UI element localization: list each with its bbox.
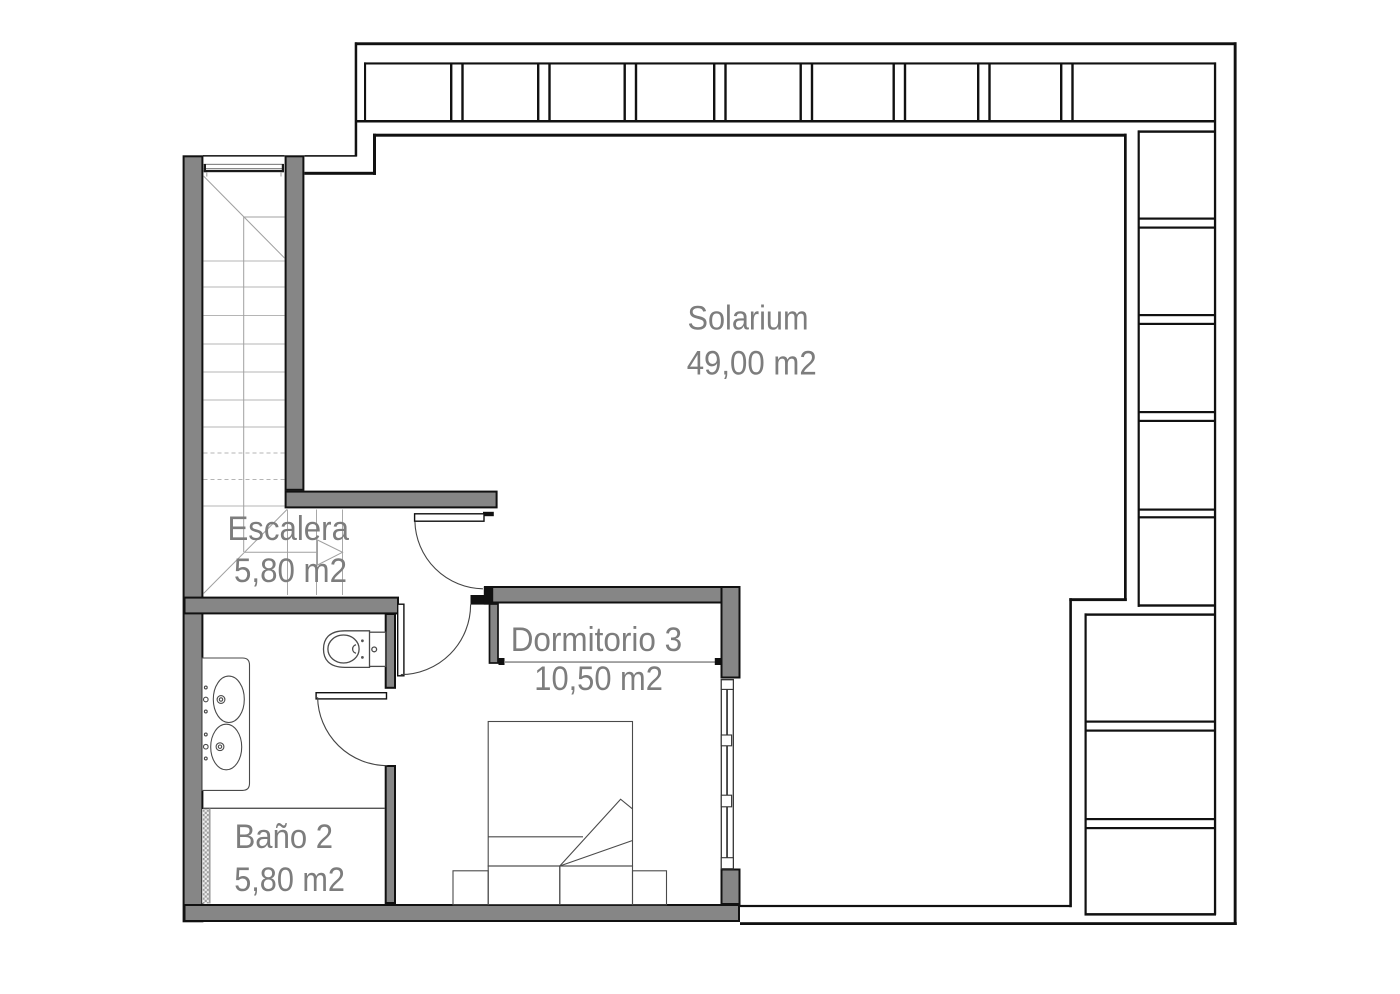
svg-text:Escalera: Escalera (227, 510, 349, 548)
svg-text:5,80 m2: 5,80 m2 (234, 861, 345, 899)
svg-text:49,00 m2: 49,00 m2 (687, 345, 817, 383)
svg-text:Solarium: Solarium (688, 300, 809, 338)
svg-text:Dormitorio 3: Dormitorio 3 (511, 621, 682, 659)
svg-text:5,80 m2: 5,80 m2 (234, 552, 347, 590)
svg-text:Baño 2: Baño 2 (235, 818, 333, 856)
svg-text:10,50 m2: 10,50 m2 (534, 660, 663, 698)
